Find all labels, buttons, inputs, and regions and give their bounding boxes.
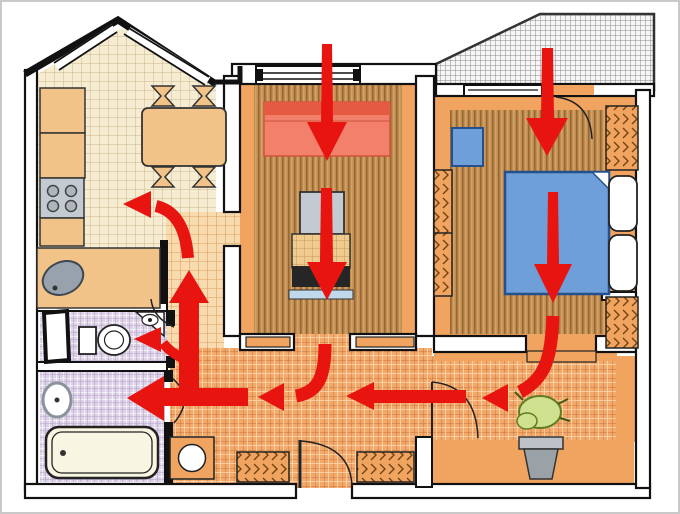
airflow-arrow-corridor-up-shaft [179, 300, 199, 392]
plant-foliage-small [517, 413, 537, 429]
bed-pillow-2 [609, 235, 637, 291]
stove-burner-2 [66, 186, 77, 197]
hall-wardrobe-right [357, 452, 414, 482]
living-window-cap-left [256, 69, 263, 81]
wall-kitchen-living-lower [224, 246, 240, 336]
kitchen-sink-drain [53, 286, 58, 291]
wall-bath-east-upper [164, 370, 173, 382]
bedroom-wardrobe-top-right [606, 106, 638, 170]
living-window [256, 66, 360, 84]
hall-margin-right-strip [616, 356, 636, 442]
bedroom-threshold [527, 351, 596, 362]
vent-shaft [44, 311, 69, 362]
living-window-cap-right [353, 69, 360, 81]
bed-pillow-1 [609, 176, 637, 231]
apartment-ventilation-floor-plan [0, 0, 680, 514]
bedroom-doorway-floor [526, 336, 596, 352]
washing-machine-drum [179, 445, 206, 472]
stove-burner-1 [48, 186, 59, 197]
wall-hall-partition-stub [416, 437, 432, 487]
stove-burner-4 [66, 201, 77, 212]
wall-outer-bottom-left [25, 484, 296, 498]
living-threshold-left [246, 337, 290, 347]
wall-outer-left [25, 70, 37, 490]
plant-pot-rim [519, 437, 563, 449]
wall-outer-bottom-right [352, 484, 650, 498]
floor-plan-svg [0, 0, 680, 514]
wall-bedroom-bottom-left [434, 336, 526, 352]
dining-table [142, 108, 226, 166]
toilet-bowl [98, 325, 130, 355]
wc-corner-sink-drain [148, 318, 152, 322]
kitchen-cabinet-3 [40, 218, 84, 246]
kitchen-cabinet-2 [40, 133, 85, 178]
toilet-tank [79, 327, 96, 354]
kitchen-cabinet-1 [40, 88, 85, 133]
airflow-arrow-hall-shaft [372, 390, 466, 403]
wall-wc-bath-divider [37, 362, 167, 371]
bathtub-drain [60, 450, 66, 456]
wall-counter-east [160, 240, 168, 310]
stove-burner-3 [48, 201, 59, 212]
airflow-arrow-to-bathroom-shaft [160, 388, 248, 406]
bedroom-chair [452, 128, 483, 166]
plant-pot-body [524, 449, 558, 479]
wall-living-bedroom [416, 76, 434, 336]
bedroom-wardrobe-bottom-right [606, 297, 638, 348]
stove [40, 178, 84, 218]
kitchen-doorway-floor [216, 212, 240, 248]
media-shelf-glass [289, 290, 353, 299]
bath-washbasin-drain [55, 398, 60, 403]
hall-wardrobe-left [237, 452, 289, 482]
living-threshold-right [356, 337, 414, 347]
